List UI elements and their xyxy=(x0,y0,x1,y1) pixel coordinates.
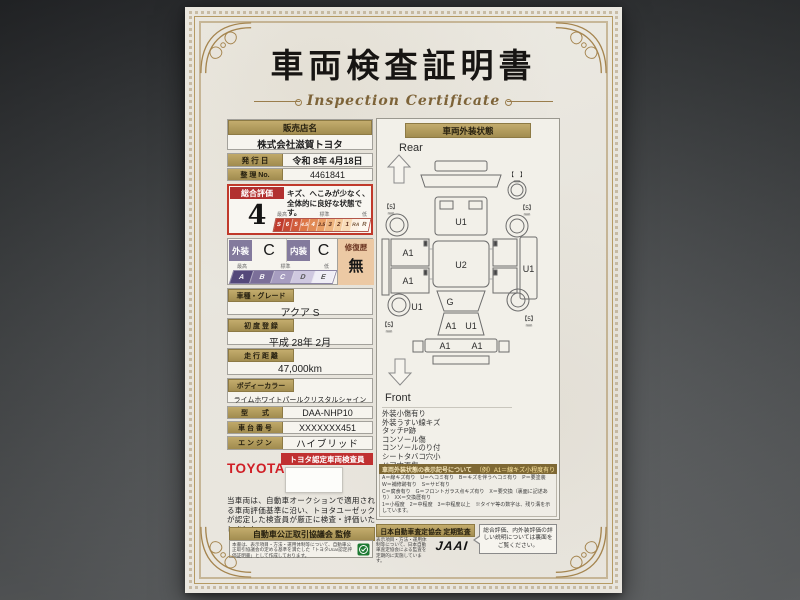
exterior-condition-header: 車両外装状態 xyxy=(405,123,531,138)
grade-scale-tick-labels: 最高 標準 低 xyxy=(231,263,335,270)
exterior-grade-label: 外装 xyxy=(229,240,252,261)
tire-unit: mm xyxy=(386,329,393,334)
scale-segments: S 6 5 4.5 4 3.5 3 2 1 RA R xyxy=(273,218,372,232)
corner-flourish-icon xyxy=(197,19,255,77)
model-code-row: 型 式 DAA-NHP10 xyxy=(227,406,373,419)
interior-grade-value: C xyxy=(310,239,337,262)
interior-grade-label: 内装 xyxy=(287,240,310,261)
rear-label: Rear xyxy=(399,142,423,154)
legend-line: C＝腐食有り G＝フロントガラス点キズ有り X＝要交換（裏面に記述あり） XX＝… xyxy=(382,489,554,502)
mark-hatch: U1 xyxy=(455,217,467,227)
jaai-text: 表示項目・方法・運用体制等について、日本自動車査定協会による監査を定期的に実施し… xyxy=(376,537,428,563)
certificate-subtitle: Inspection Certificate xyxy=(185,93,622,109)
mileage-box: 走 行 距 離 47,000km xyxy=(227,348,373,375)
mark-bumper-left: A1 xyxy=(439,341,450,351)
repair-history-cell: 修復歴 無 xyxy=(337,239,374,285)
grade-scale-segments: A B C D E xyxy=(229,270,338,284)
subtitle-flourish xyxy=(507,101,553,102)
scale-mid-label: 標準 xyxy=(280,263,290,270)
subtitle-flourish xyxy=(254,101,300,102)
scale-mid-label: 標準 xyxy=(319,211,329,218)
model-grade-value: アクア S xyxy=(228,304,372,319)
exterior-grade-value: C xyxy=(252,239,287,262)
mark-windshield: G xyxy=(446,297,453,307)
issue-date-row: 発 行 日 令和 8年 4月18日 xyxy=(227,153,373,167)
mark-side-sill: U1 xyxy=(523,264,535,274)
mileage-value: 47,000km xyxy=(228,364,372,375)
inspector-stamp-box xyxy=(285,467,343,493)
scale-low-label: 低 xyxy=(324,263,329,270)
tire-unit: mm xyxy=(526,323,533,328)
model-grade-label: 車種・グレード xyxy=(228,289,294,302)
corner-flourish-icon xyxy=(197,523,255,581)
corner-flourish-icon xyxy=(552,19,610,77)
dealer-box: 販売店名 株式会社滋賀トヨタ xyxy=(227,119,373,150)
symbol-legend: 車両外装状態の表示記号について （例）A1＝線キズ小程度有り A＝線キズ有り U… xyxy=(379,464,557,517)
mark-hood-a: A1 xyxy=(445,321,456,331)
exterior-condition-panel: 車両外装状態 xyxy=(376,118,560,520)
mark-hood-b: U1 xyxy=(465,321,477,331)
chassis-no-row: 車 台 番 号 XXXXXXX451 xyxy=(227,421,373,434)
scale-tick-labels: 最高 標準 低 xyxy=(274,211,370,218)
dealer-name: 株式会社滋賀トヨタ xyxy=(228,135,372,152)
chassis-no-value: XXXXXXX451 xyxy=(283,422,372,433)
desk-background: 車両検査証明書 Inspection Certificate 販売店名 株式会社… xyxy=(0,0,800,600)
model-grade-box: 車種・グレード アクア S xyxy=(227,288,373,315)
front-label: Front xyxy=(385,392,411,404)
dealer-label: 販売店名 xyxy=(228,120,372,135)
tire-unit: mm xyxy=(514,179,521,184)
backside-note-text: 総合評価、内外装評価の詳しい説明については裏面をご覧ください。 xyxy=(480,527,556,551)
first-registration-box: 初 度 登 録 平成 28年 2月 xyxy=(227,318,373,345)
body-color-label: ボディーカラー xyxy=(228,379,294,392)
symbol-legend-lines: A＝線キズ有り U＝ヘコミ有り B＝キズを伴うヘコミ有り P＝要塗装 W＝補修跡… xyxy=(379,474,557,517)
mark-bumper-right: A1 xyxy=(471,341,482,351)
tire-unit: mm xyxy=(524,212,531,217)
toyota-logo: TOYOTA xyxy=(227,459,279,477)
scale-seg: R xyxy=(359,219,370,231)
grade-scale: 最高 標準 低 A B C D E xyxy=(231,263,335,284)
scale-seg: E xyxy=(312,271,336,283)
certificate-subtitle-en: Inspection Certificate xyxy=(307,93,501,109)
fair-trade-emblem-icon xyxy=(357,543,370,556)
control-no-row: 整 理 No. 4461841 xyxy=(227,168,373,181)
scale-low-label: 低 xyxy=(362,211,367,218)
scale-high-label: 最高 xyxy=(277,211,287,218)
first-registration-value: 平成 28年 2月 xyxy=(228,334,372,349)
repair-history-label: 修復歴 xyxy=(338,242,374,253)
grade-box: 外装 C 内装 C 修復歴 無 最高 標準 低 A B C D E xyxy=(227,238,373,285)
legend-line: A＝線キズ有り U＝ヘコミ有り B＝キズを伴うヘコミ有り P＝要塗装 W＝補修跡… xyxy=(382,475,554,488)
symbol-legend-header: 車両外装状態の表示記号について （例）A1＝線キズ小程度有り xyxy=(379,464,557,474)
body-color-value: ライムホワイトパールクリスタルシャイン xyxy=(228,395,372,405)
chassis-no-label: 車 台 番 号 xyxy=(228,422,283,433)
mark-roof: U2 xyxy=(455,260,467,270)
backside-note-box: 総合評価、内外装評価の詳しい説明については裏面をご覧ください。 xyxy=(479,524,557,554)
certificate-paper: 車両検査証明書 Inspection Certificate 販売店名 株式会社… xyxy=(185,7,622,593)
repair-history-value: 無 xyxy=(338,255,374,276)
control-no-value: 4461841 xyxy=(283,169,372,180)
model-code-label: 型 式 xyxy=(228,407,283,418)
mark-door-rear: A1 xyxy=(402,248,413,258)
legend-header-text: 車両外装状態の表示記号について xyxy=(382,465,472,474)
tire-unit: mm xyxy=(388,211,395,216)
legend-example-text: （例）A1＝線キズ小程度有り xyxy=(476,465,555,474)
body-color-box: ボディーカラー ライムホワイトパールクリスタルシャイン xyxy=(227,378,373,403)
mileage-label: 走 行 距 離 xyxy=(228,349,294,362)
jaai-logo: JAAI xyxy=(430,538,474,553)
jaai-header: 日本自動車査定協会 定期監査 xyxy=(376,524,475,537)
mark-door-front: A1 xyxy=(402,276,413,286)
control-no-label: 整 理 No. xyxy=(228,169,283,180)
scale-high-label: 最高 xyxy=(237,263,247,270)
issue-date-value: 令和 8年 4月18日 xyxy=(283,154,372,166)
engine-value: ハイブリッド xyxy=(283,437,372,449)
engine-label: エ ン ジ ン xyxy=(228,437,283,449)
overall-rating-scale: 最高 標準 低 S 6 5 4.5 4 3.5 3 2 1 RA R xyxy=(274,211,370,232)
engine-row: エ ン ジ ン ハイブリッド xyxy=(227,436,373,450)
first-registration-label: 初 度 登 録 xyxy=(228,319,294,332)
model-code-value: DAA-NHP10 xyxy=(283,407,372,418)
corner-flourish-icon xyxy=(552,523,610,581)
legend-line: 1＝小程度 2＝中程度 3＝中程度以上 ※タイヤ等の数字は、残り溝を示しています… xyxy=(382,502,554,515)
overall-rating-box: 総合評価 4 キズ、へこみが少なく、全体的に良好な状態です。 最高 標準 低 S… xyxy=(227,184,373,235)
car-exterior-diagram: Rear Front U1 U2 G A1 U1 A1 A1 A1 A1 U1 … xyxy=(379,137,559,405)
inspector-badge: トヨタ認定車両検査員 xyxy=(281,453,373,465)
issue-date-label: 発 行 日 xyxy=(228,154,283,166)
mark-side-front: U1 xyxy=(411,302,423,312)
